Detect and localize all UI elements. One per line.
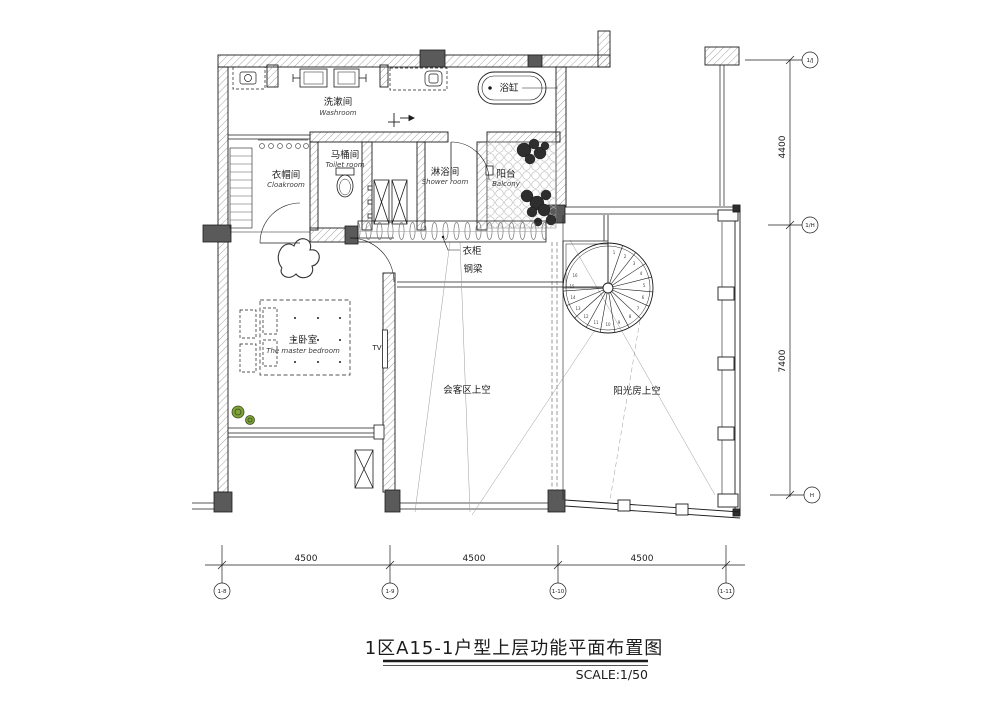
- stair-step-number: 4: [640, 271, 643, 276]
- wardrobe-band: [358, 221, 546, 242]
- stair-step-number: 13: [575, 306, 581, 311]
- dim-7400: 7400: [778, 349, 788, 372]
- wall-left-upper: [218, 67, 228, 228]
- tv-fixture: [383, 330, 388, 368]
- stair-step-number: 11: [593, 320, 599, 325]
- label-toilet-zh: 马桶间: [331, 149, 360, 161]
- label-tv: TV: [371, 344, 381, 352]
- label-sunroom-void: 阳光房上空: [613, 385, 661, 397]
- stair-step-number: 7: [637, 306, 640, 311]
- counter-unit: [390, 68, 447, 90]
- stair-step-number: 1: [613, 250, 616, 255]
- label-balcony-en: Balcony: [492, 180, 521, 188]
- wall-washroom-bottom-a: [310, 132, 448, 142]
- valve-symbol: [388, 113, 414, 127]
- column: [345, 226, 358, 244]
- title-block: 1区A15-1户型上层功能平面布置图 SCALE:1/50: [365, 638, 664, 682]
- label-cloakroom-en: Cloakroom: [267, 181, 305, 189]
- stair-step-number: 2: [624, 254, 627, 259]
- grid-line-top-right: [720, 65, 724, 206]
- linework: [192, 135, 735, 509]
- label-master-bedroom-en: The master bedroom: [266, 347, 340, 355]
- grid-bubble-right-2: 1/H: [805, 223, 815, 229]
- label-bathtub: 浴缸: [499, 82, 519, 94]
- column: [214, 492, 232, 512]
- pier-washroom-2: [380, 65, 388, 87]
- shaft: [355, 450, 373, 488]
- dim-4500-1: 4500: [295, 554, 318, 564]
- cloakroom-door-arc: [260, 203, 300, 243]
- grid-bubble-right-3: H: [810, 493, 814, 499]
- grid-bubble-bottom-1: 1-8: [218, 589, 227, 595]
- label-master-bedroom-zh: 主卧室: [289, 334, 318, 346]
- stair-step-number: 10: [605, 322, 611, 327]
- wall-shower-left: [417, 142, 425, 230]
- dimension-right: [745, 52, 820, 503]
- sunroom-glazing: [565, 205, 740, 518]
- stair-step-number: 8: [629, 314, 632, 319]
- dim-4500-3: 4500: [631, 554, 654, 564]
- label-shower-en: Shower room: [422, 178, 469, 186]
- wall-toilet-left: [310, 142, 318, 230]
- label-washroom-zh: 洗漱间: [324, 96, 353, 108]
- grid-bubble-bottom-4: 1-11: [720, 589, 732, 595]
- wall-shower-right: [477, 142, 487, 230]
- sink-left: [293, 69, 327, 87]
- label-wardrobe: 衣柜: [462, 245, 482, 257]
- spiral-stair: 1 2 3 4 5 6 7 8 9 10 11 12 13 14 15 16: [563, 241, 653, 333]
- cloakroom-shelves: [230, 148, 252, 228]
- stair-step-number: 9: [618, 320, 621, 325]
- column: [420, 50, 445, 67]
- grid-bubble-right-1: 1/J: [807, 58, 814, 64]
- floor-plan-canvas: 1 2 3 4 5 6 7 8 9 10 11 12 13 14 15 16 洗…: [0, 0, 1000, 707]
- wall-left-lower: [218, 242, 228, 492]
- stair-step-number: 12: [583, 314, 589, 319]
- column: [385, 490, 400, 512]
- closet-panels: [368, 180, 407, 224]
- column: [548, 490, 565, 512]
- stair-step-number: 16: [572, 273, 578, 278]
- label-shower-zh: 淋浴间: [431, 166, 460, 178]
- grid-column-top-right: [705, 47, 739, 65]
- label-washroom-en: Washroom: [319, 109, 356, 117]
- drawing-title: 1区A15-1户型上层功能平面布置图: [365, 638, 664, 659]
- label-steel-beam: 钢梁: [463, 263, 483, 275]
- wall-washroom-bottom-b: [487, 132, 560, 142]
- sink-right: [334, 69, 366, 87]
- potted-plants: [232, 406, 255, 425]
- column: [203, 225, 231, 242]
- stair-step-number: 15: [569, 284, 575, 289]
- wall-top-return: [598, 31, 610, 67]
- column: [528, 55, 542, 67]
- label-toilet-en: Toilet room: [325, 161, 364, 169]
- toilet-fixture: [336, 168, 354, 197]
- label-cloakroom-zh: 衣帽间: [272, 169, 301, 181]
- drawing-scale: SCALE:1/50: [576, 667, 648, 682]
- stair-step-number: 14: [570, 295, 576, 300]
- label-living-void: 会客区上空: [443, 384, 491, 396]
- dim-4400: 4400: [778, 135, 788, 158]
- grid-bubble-bottom-3: 1-10: [552, 589, 565, 595]
- cloakroom-hangers: [258, 140, 309, 149]
- sketch-doodle: [278, 239, 319, 278]
- washer-unit: [233, 67, 265, 89]
- stair-step-number: 5: [643, 283, 646, 288]
- stair-step-number: 6: [642, 295, 645, 300]
- grid-bubble-bottom-2: 1-9: [386, 589, 395, 595]
- pier-washroom-1: [267, 65, 278, 87]
- wall-tv-pier: [383, 273, 395, 492]
- dim-4500-2: 4500: [463, 554, 486, 564]
- walls: [218, 31, 739, 492]
- drawing-sheet: 1 2 3 4 5 6 7 8 9 10 11 12 13 14 15 16 洗…: [0, 0, 1000, 707]
- projection-lines: [415, 240, 715, 515]
- stair-step-number: 3: [633, 261, 636, 266]
- label-balcony-zh: 阳台: [496, 168, 515, 180]
